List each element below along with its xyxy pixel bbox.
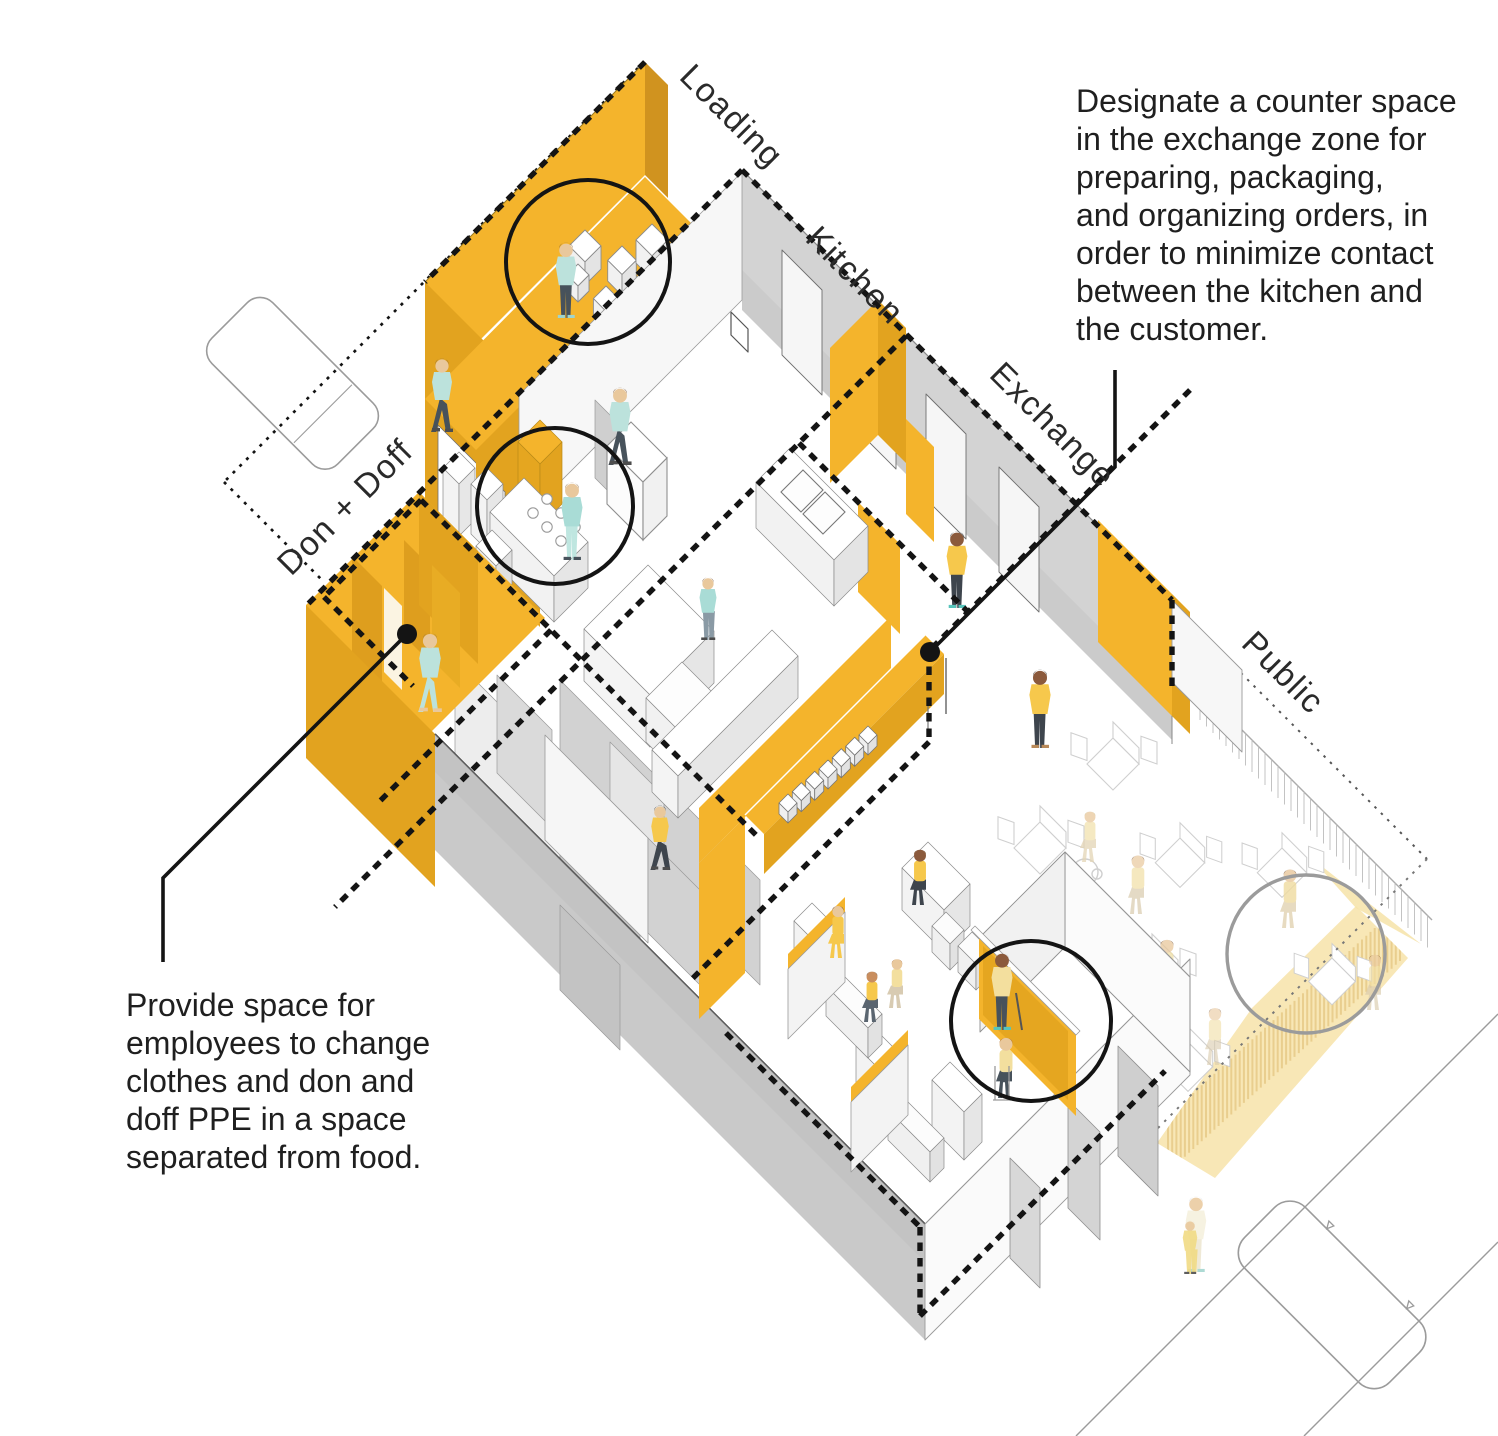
svg-text:order to minimize contact: order to minimize contact	[1076, 235, 1434, 271]
svg-text:doff PPE in a space: doff PPE in a space	[126, 1101, 406, 1137]
svg-text:Provide space for: Provide space for	[126, 987, 375, 1023]
svg-text:in the exchange zone for: in the exchange zone for	[1076, 121, 1427, 157]
svg-text:preparing, packaging,: preparing, packaging,	[1076, 159, 1384, 195]
svg-text:employees to change: employees to change	[126, 1025, 430, 1061]
svg-text:and organizing orders, in: and organizing orders, in	[1076, 197, 1428, 233]
svg-text:between the kitchen and: between the kitchen and	[1076, 273, 1423, 309]
svg-text:separated from food.: separated from food.	[126, 1139, 421, 1175]
svg-text:Designate a counter space: Designate a counter space	[1076, 83, 1457, 119]
svg-text:clothes and don and: clothes and don and	[126, 1063, 414, 1099]
svg-text:the customer.: the customer.	[1076, 311, 1268, 347]
